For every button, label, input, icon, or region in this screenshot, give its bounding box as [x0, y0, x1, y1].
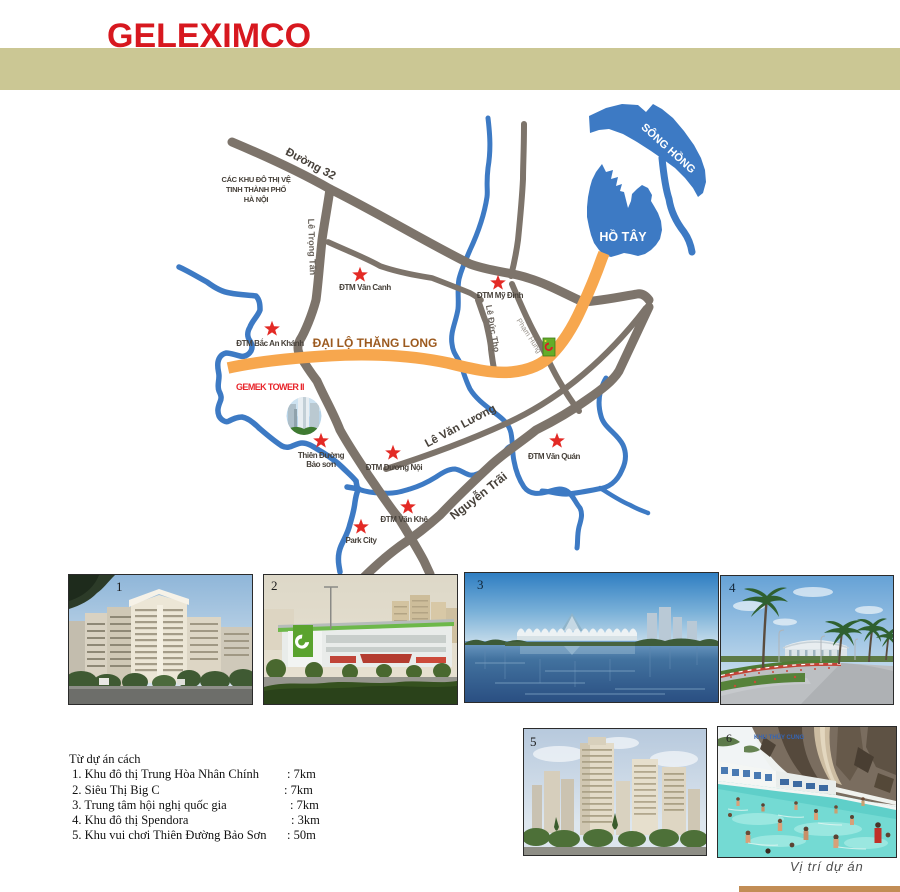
svg-text:ĐTM Dương Nội: ĐTM Dương Nội: [366, 463, 423, 472]
svg-text:ĐTM Mỹ Đình: ĐTM Mỹ Đình: [477, 291, 524, 300]
svg-text:TINH THÀNH PHỐ: TINH THÀNH PHỐ: [226, 184, 286, 194]
svg-text:2: 2: [271, 578, 278, 593]
svg-text:KHU THỦY CUNG: KHU THỦY CUNG: [754, 734, 805, 741]
svg-text:HỒ TÂY: HỒ TÂY: [599, 229, 647, 244]
svg-text:GEMEK TOWER II: GEMEK TOWER II: [236, 382, 304, 392]
svg-text:ĐTM Văn Quán: ĐTM Văn Quán: [528, 452, 581, 461]
svg-text:3: 3: [477, 577, 484, 592]
svg-text:ĐẠI LỘ THĂNG LONG: ĐẠI LỘ THĂNG LONG: [313, 335, 438, 350]
svg-text:Lê Trọng Tấn: Lê Trọng Tấn: [306, 218, 318, 275]
svg-text:ĐTM Vân Canh: ĐTM Vân Canh: [339, 283, 391, 292]
svg-text:Bảo sơn: Bảo sơn: [306, 460, 336, 469]
svg-text:1: 1: [116, 579, 123, 594]
svg-text:Park City: Park City: [345, 536, 377, 545]
svg-text:4: 4: [729, 580, 736, 595]
svg-text:CÁC KHU ĐÔ THỊ VỆ: CÁC KHU ĐÔ THỊ VỆ: [221, 175, 290, 184]
svg-text:6: 6: [726, 731, 732, 745]
svg-text:HÀ NỘI: HÀ NỘI: [244, 195, 269, 204]
svg-text:5: 5: [530, 734, 537, 749]
svg-text:Thiên Đường: Thiên Đường: [298, 451, 345, 460]
svg-text:ĐTM Văn Khê: ĐTM Văn Khê: [380, 515, 428, 524]
svg-text:ĐTM Bắc An Khánh: ĐTM Bắc An Khánh: [236, 339, 304, 348]
